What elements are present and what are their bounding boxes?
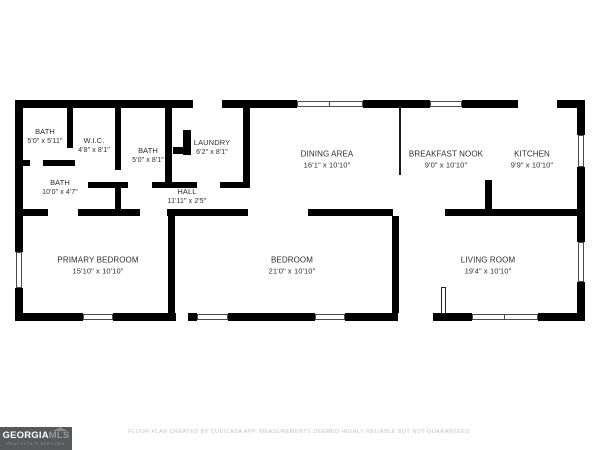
floor-plan-page: BATH 5'0" x 5'11" W.I.C. 4'8" x 8'1" BAT… [0, 0, 600, 450]
room-dims: 10'0" x 4'7" [42, 188, 78, 197]
room-dims: 19'4" x 10'10" [461, 266, 515, 276]
window-symbol [329, 101, 363, 107]
wall-segment [445, 209, 577, 216]
wall-segment [345, 313, 398, 321]
window-symbol [297, 101, 330, 107]
wall-segment [15, 288, 23, 321]
wall-segment [220, 182, 250, 188]
room-dims: 9'0" x 10'10" [409, 160, 483, 170]
window-symbol [578, 135, 584, 167]
room-label-laundry: LAUNDRY 6'2" x 8'1" [194, 138, 230, 158]
room-dims: 5'0" x 5'11" [27, 137, 62, 146]
room-name: PRIMARY BEDROOM [57, 256, 138, 267]
logo-brand-suffix: MLS [49, 431, 70, 441]
disclaimer-text: FLOOR PLAN CREATED BY CUBICASA APP. MEAS… [128, 429, 471, 435]
wall-segment [22, 209, 48, 216]
window-symbol [430, 101, 462, 107]
logo-brand: GEORGIA [3, 431, 49, 441]
window-symbol [197, 314, 228, 320]
room-dims: 16'1" x 10'10" [301, 160, 354, 170]
wall-segment [67, 108, 73, 148]
room-name: HALL [168, 187, 207, 197]
room-label-breakfast-nook: BREAKFAST NOOK 9'0" x 10'10" [409, 150, 483, 171]
room-name: BREAKFAST NOOK [409, 150, 483, 161]
window-symbol [504, 314, 538, 320]
wall-segment [577, 282, 585, 321]
room-label-bath-2: BATH 5'0" x 8'1" [132, 146, 164, 166]
room-dims: 21'0" x 10'10" [269, 266, 316, 276]
room-dims: 11'11" x 2'5" [168, 197, 207, 206]
georgia-mls-logo: GEORGIAMLS REAL ESTATE SERVICES [0, 427, 72, 450]
room-dims: 9'9" x 10'10" [511, 160, 553, 170]
room-label-wic: W.I.C. 4'8" x 8'1" [78, 136, 110, 156]
room-name: LAUNDRY [194, 138, 230, 148]
logo-brand-line: GEORGIAMLS [3, 431, 70, 441]
wall-segment [165, 107, 172, 187]
wall-segment-thin [399, 108, 401, 175]
room-dims: 6'2" x 8'1" [194, 148, 230, 157]
wall-segment [433, 313, 472, 321]
room-dims: 4'8" x 8'1" [78, 146, 110, 155]
room-name: BATH [132, 146, 164, 156]
room-label-dining-area: DINING AREA 16'1" x 10'10" [301, 150, 354, 171]
room-label-bedroom: BEDROOM 21'0" x 10'10" [269, 256, 316, 277]
room-label-hall: HALL 11'11" x 2'5" [168, 187, 207, 207]
wall-segment [15, 100, 23, 252]
wall-segment [43, 160, 75, 166]
room-name: DINING AREA [301, 150, 354, 161]
window-symbol [578, 242, 584, 282]
wall-segment [88, 182, 128, 188]
room-name: BATH [27, 127, 62, 137]
room-label-primary-bedroom: PRIMARY BEDROOM 15'10" x 10'10" [57, 256, 138, 277]
room-name: BATH [42, 178, 78, 188]
wall-segment [22, 160, 30, 166]
wall-segment [167, 209, 248, 216]
window-symbol [83, 314, 113, 320]
wall-segment [228, 313, 315, 321]
room-name: KITCHEN [511, 150, 553, 161]
wall-segment [577, 167, 585, 242]
logo-tagline: REAL ESTATE SERVICES [7, 442, 65, 446]
wall-segment [577, 100, 585, 135]
window-symbol [472, 314, 505, 320]
wall-segment [243, 107, 250, 187]
room-label-living-room: LIVING ROOM 19'4" x 10'10" [461, 256, 515, 277]
wall-segment [115, 108, 121, 170]
wall-segment [308, 209, 393, 216]
door-leaf [441, 287, 446, 314]
wall-segment [113, 313, 176, 321]
window-symbol [315, 314, 345, 320]
room-dims: 5'0" x 8'1" [132, 156, 164, 165]
room-name: LIVING ROOM [461, 256, 515, 267]
room-name: BEDROOM [269, 256, 316, 267]
wall-segment [168, 216, 175, 313]
wall-segment [188, 313, 197, 321]
room-label-kitchen: KITCHEN 9'9" x 10'10" [511, 150, 553, 171]
wall-segment [392, 216, 399, 313]
wall-segment [462, 100, 518, 108]
wall-segment [173, 147, 187, 154]
wall-segment [78, 209, 140, 216]
room-label-bath-3: BATH 10'0" x 4'7" [42, 178, 78, 198]
wall-segment [363, 100, 430, 108]
wall-segment [222, 100, 297, 108]
room-label-bath-1: BATH 5'0" x 5'11" [27, 127, 62, 147]
wall-segment [15, 313, 83, 321]
room-dims: 15'10" x 10'10" [57, 266, 138, 276]
window-symbol [16, 252, 22, 288]
wall-segment [485, 180, 492, 216]
room-name: W.I.C. [78, 136, 110, 146]
